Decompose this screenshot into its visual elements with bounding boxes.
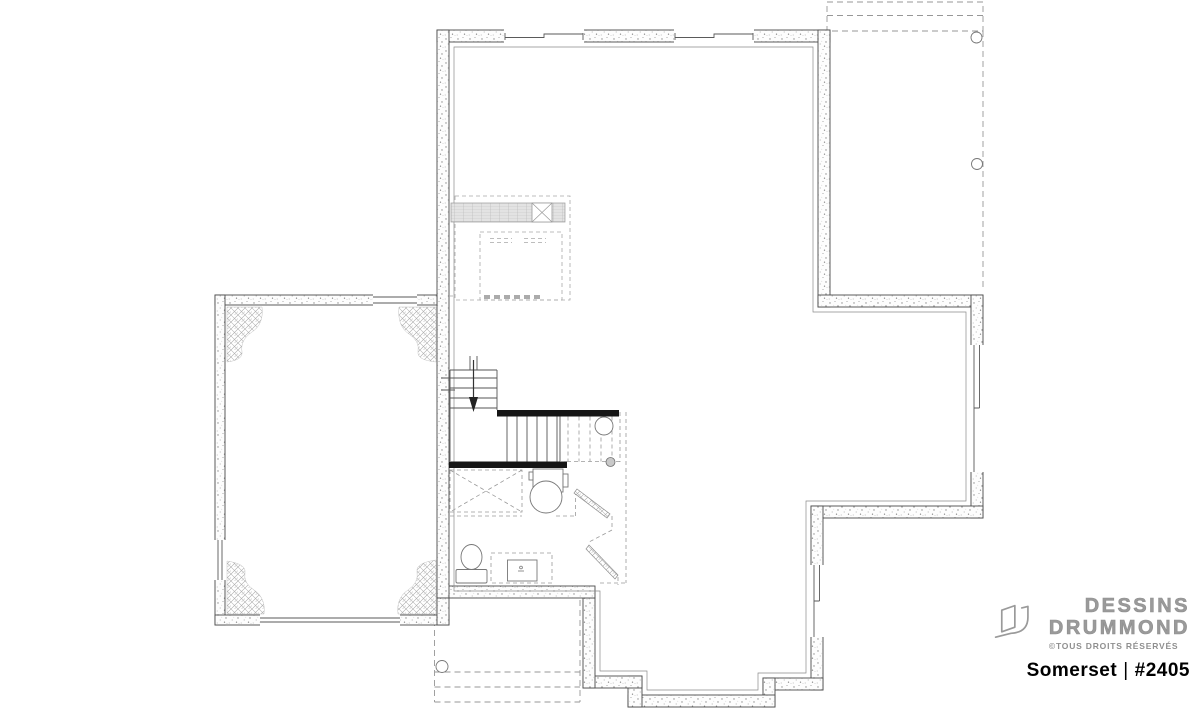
porch-post xyxy=(436,661,448,673)
angled-doors xyxy=(556,489,618,585)
brand-name-line2: DRUMMOND xyxy=(1049,617,1190,639)
plan-title: Somerset|#2405 xyxy=(790,660,1190,682)
floor-drain xyxy=(606,458,615,467)
brand-block: DESSINS DRUMMOND ©TOUS DROITS RÉSERVÉS xyxy=(985,595,1190,651)
foundation-walls xyxy=(437,30,983,707)
duct-cross-box xyxy=(532,203,552,222)
window xyxy=(810,565,823,637)
deck-above-outline xyxy=(827,2,983,290)
angled-door-leaf xyxy=(586,545,618,579)
porch-above-outline xyxy=(435,600,581,702)
wall-bath-south xyxy=(437,586,595,598)
plan-number: #2405 xyxy=(1135,660,1190,681)
angled-door-leaf xyxy=(574,489,610,518)
support-column xyxy=(595,417,613,435)
window xyxy=(970,345,983,472)
future-fixture-crossbox xyxy=(450,470,522,516)
hvac-area xyxy=(449,196,570,300)
toilet xyxy=(456,545,487,584)
wall-west-lower xyxy=(583,598,595,688)
brand-copyright: ©TOUS DROITS RÉSERVÉS xyxy=(1049,641,1190,651)
brand-name-line1: DESSINS xyxy=(1049,595,1190,617)
concrete-frost-pad xyxy=(399,307,436,362)
plan-title-separator: | xyxy=(1117,660,1134,681)
framed-wall-black xyxy=(449,462,567,469)
wall-east-upper xyxy=(818,30,830,307)
window xyxy=(674,29,754,42)
concrete-frost-pad xyxy=(227,307,262,362)
laundry-tub xyxy=(529,469,568,513)
wall-west xyxy=(437,30,449,598)
future-bathroom-fixtures xyxy=(450,469,618,585)
garage-wall-right-lower xyxy=(437,598,449,625)
wall-ext-north xyxy=(818,295,983,307)
vanity-sink xyxy=(491,553,552,583)
window xyxy=(214,540,225,580)
framed-wall-black xyxy=(497,410,619,417)
plan-name: Somerset xyxy=(1027,660,1118,681)
openings xyxy=(214,29,983,637)
wall-bottom-center xyxy=(628,695,775,707)
wall-ext-south xyxy=(811,506,983,518)
garage-walls xyxy=(215,295,449,625)
garage-frost-pads xyxy=(227,307,436,614)
window xyxy=(504,29,584,42)
concrete-frost-pad xyxy=(398,560,436,614)
drummond-d-logo-icon xyxy=(991,597,1031,645)
window xyxy=(373,294,417,305)
deck-post xyxy=(972,159,983,170)
concrete-frost-pad xyxy=(227,561,264,614)
wall-top xyxy=(437,30,830,42)
floor-plan-sheet: DESSINS DRUMMOND ©TOUS DROITS RÉSERVÉS S… xyxy=(0,0,1200,711)
deck-post xyxy=(971,32,982,43)
stair-above-dashed xyxy=(560,412,626,583)
garage-door-opening xyxy=(260,614,400,625)
